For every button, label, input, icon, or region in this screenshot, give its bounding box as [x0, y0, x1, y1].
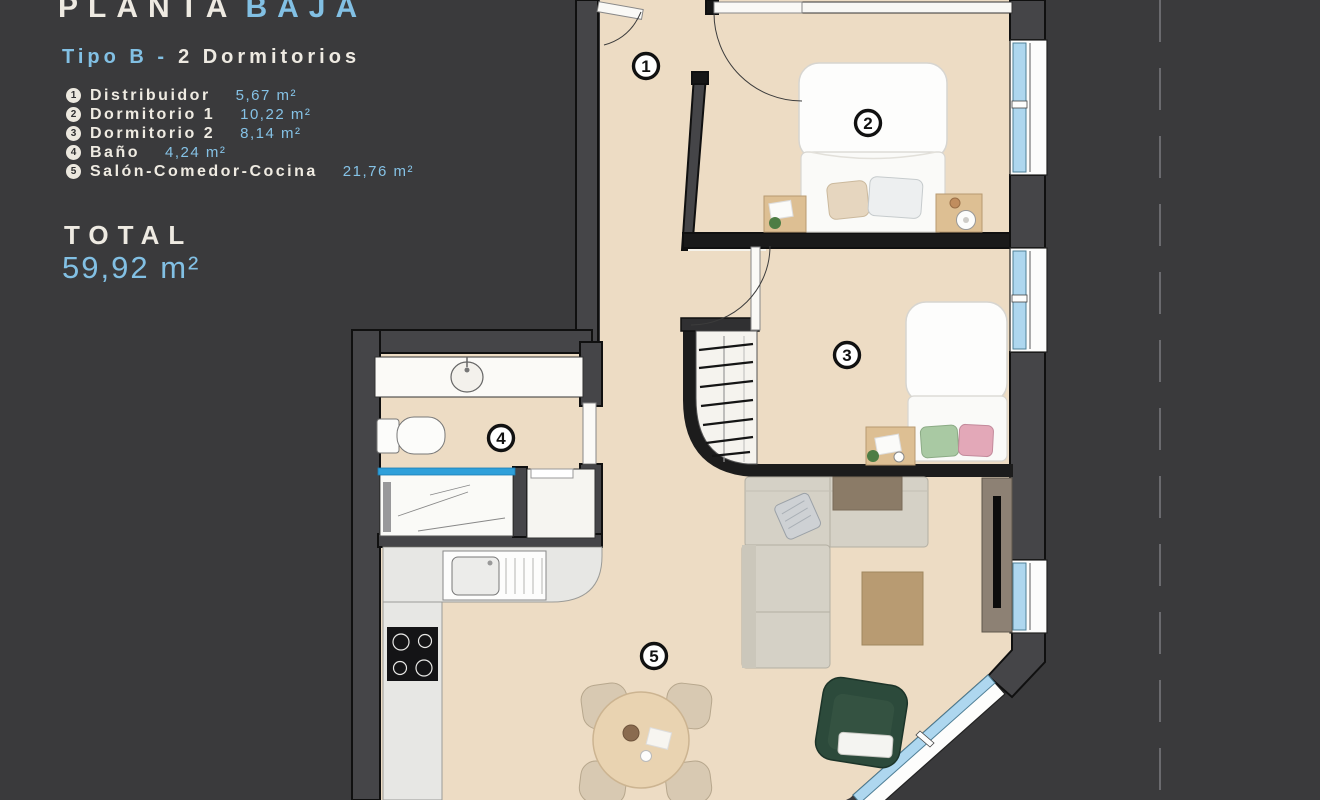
marker-dormitorio2: 3 — [835, 343, 860, 368]
marker-number: 1 — [641, 57, 650, 76]
kitchen-sink-drain — [488, 561, 493, 566]
window-3 — [1010, 560, 1047, 633]
pier-right-2 — [1010, 175, 1045, 248]
sofa-backrest — [742, 545, 756, 668]
wall-top-cut — [798, 2, 1012, 13]
lamp-center — [963, 217, 969, 223]
bathroom-door — [583, 403, 596, 464]
shower-channel — [383, 482, 391, 532]
marker-number: 5 — [649, 647, 658, 666]
floorplan-drawing: 1 2 3 4 5 — [0, 0, 1320, 800]
armchair-pillow — [838, 732, 893, 758]
desk-plant — [867, 450, 879, 462]
bed1-pillow-beige — [826, 180, 870, 220]
bed2-duvet-top — [906, 302, 1007, 403]
wall-left-exterior — [576, 0, 598, 352]
tv-screen — [993, 496, 1001, 608]
armchair — [813, 675, 910, 770]
marker-number: 2 — [863, 114, 872, 133]
marker-salon: 5 — [642, 644, 667, 669]
marker-number: 4 — [496, 429, 506, 448]
floorplan-page: PLANTABAJA Tipo B -2 Dormitorios 1 Distr… — [0, 0, 1320, 800]
shower-glass — [378, 468, 515, 475]
window-2 — [1010, 248, 1047, 352]
laundry-closet-door — [531, 469, 573, 478]
table-decor — [623, 725, 639, 741]
table-cup — [641, 751, 652, 762]
desk-clock — [894, 452, 904, 462]
wall-closet-left — [513, 467, 527, 537]
bed2-pillow-green — [920, 425, 959, 459]
wall-wing-top — [352, 330, 592, 353]
toilet-bowl — [397, 417, 445, 454]
marker-bano: 4 — [489, 426, 514, 451]
wall-bedroom1-bottom — [683, 233, 1013, 248]
window-1 — [1010, 40, 1047, 175]
sofa-throw — [833, 477, 902, 510]
marker-number: 3 — [842, 346, 851, 365]
pier-right-3 — [1010, 352, 1045, 560]
wall-hall-jamb — [692, 72, 708, 84]
marker-dormitorio1: 2 — [856, 111, 881, 136]
sink-drain — [465, 368, 470, 373]
bed2-pillow-pink — [958, 424, 994, 457]
bedroom2-door-leaf — [751, 247, 760, 330]
toilet-tank — [377, 419, 399, 453]
pier-right-1 — [1010, 0, 1045, 40]
bedroom1-door-leaf — [714, 2, 802, 13]
wall-wing-left — [352, 330, 380, 800]
living-rug — [862, 572, 923, 645]
nightstand-left-paper — [769, 200, 793, 219]
cup — [950, 198, 960, 208]
laundry-closet — [527, 469, 595, 538]
plant-left — [769, 217, 781, 229]
marker-distribuidor: 1 — [634, 54, 659, 79]
bed1-pillow-white — [868, 176, 924, 219]
dining-table — [593, 692, 689, 788]
